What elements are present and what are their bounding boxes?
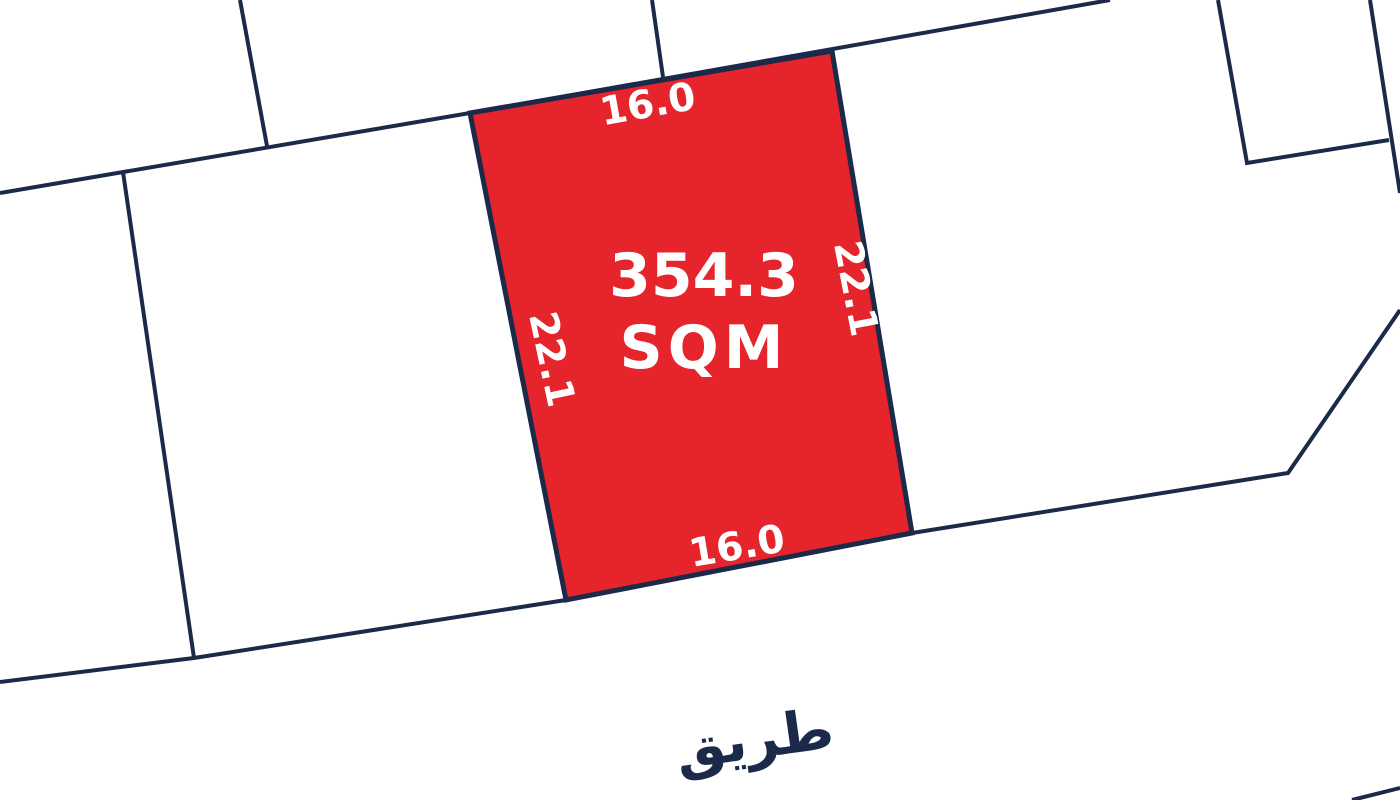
bottom-right-road-line — [1352, 788, 1400, 800]
road-label: طريق — [671, 696, 838, 783]
left-parcel-divider — [123, 172, 194, 658]
plot-map: 354.3 SQM 16.0 16.0 22.1 22.1 طريق — [0, 0, 1400, 800]
plot-area-value: 354.3 — [609, 241, 799, 311]
top-right-parcel-boundary — [1218, 0, 1389, 163]
upper-left-parcel-divider — [240, 0, 267, 146]
plot-area-unit: SQM — [620, 313, 789, 383]
top-right-parcel-side — [1370, 0, 1400, 193]
plot-map-canvas: 354.3 SQM 16.0 16.0 22.1 22.1 طريق — [0, 0, 1400, 800]
upper-middle-parcel-divider — [652, 0, 663, 77]
